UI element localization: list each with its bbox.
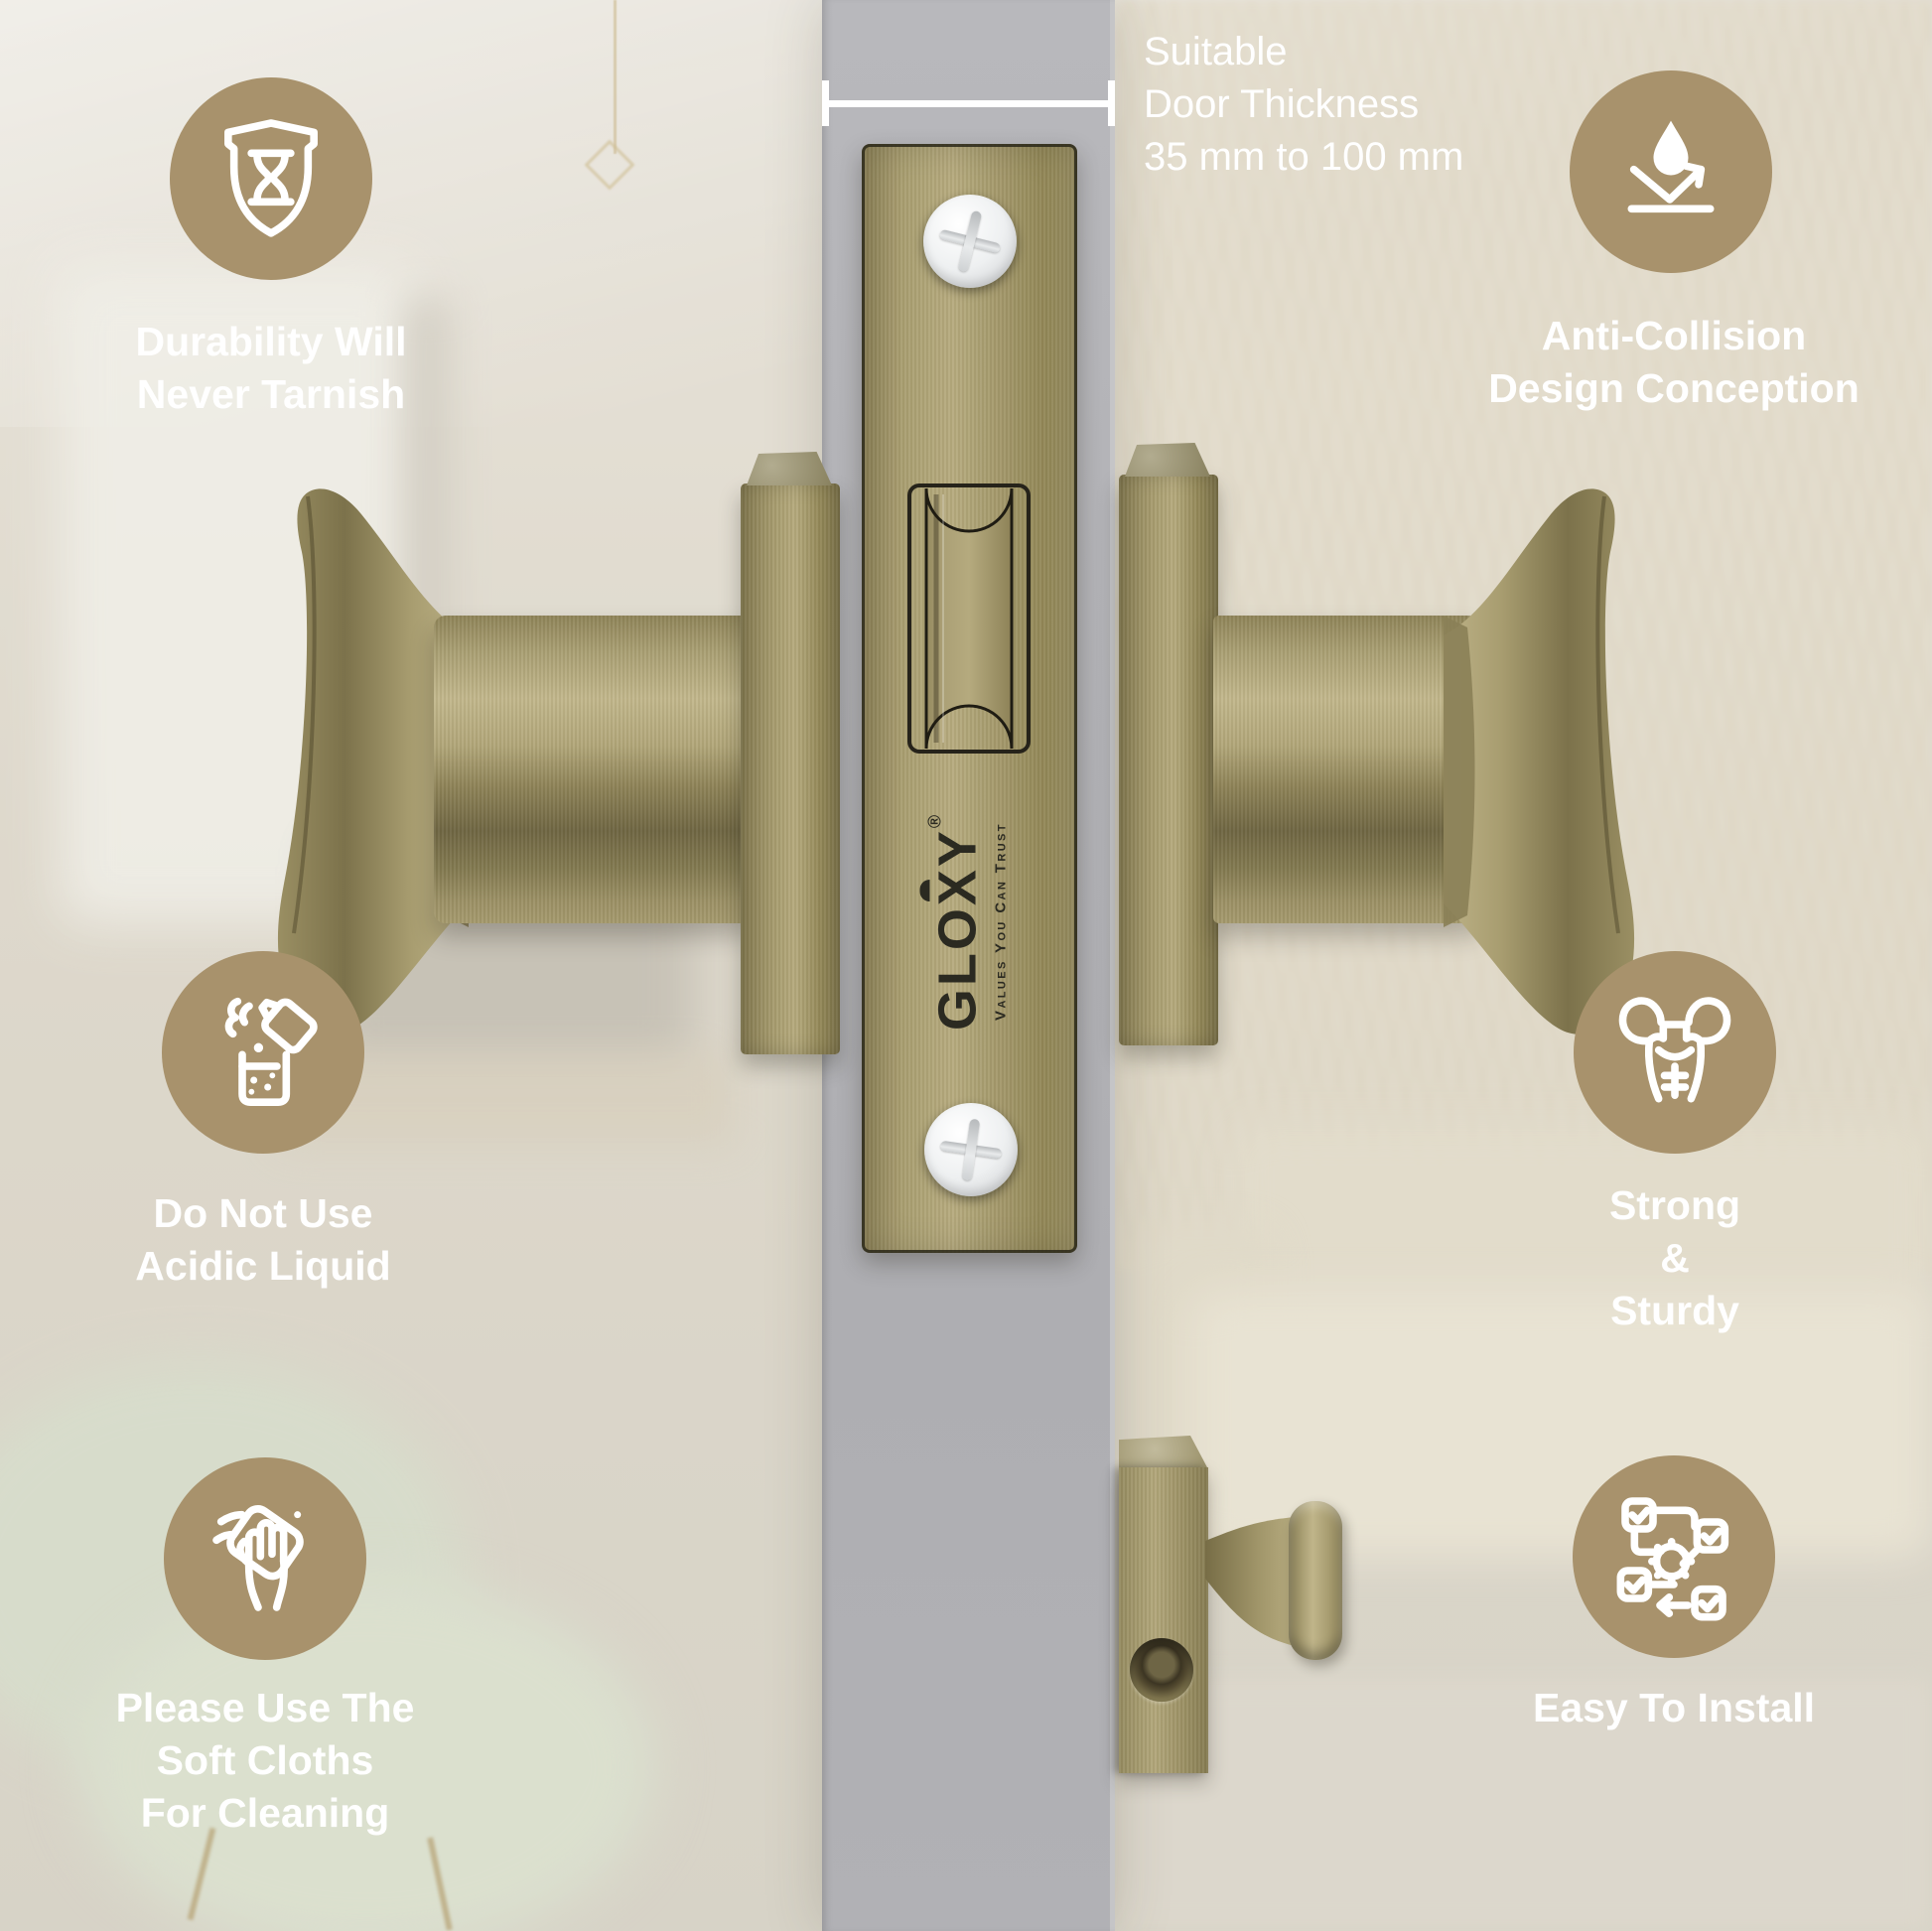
caption-line: For Cleaning xyxy=(37,1787,493,1840)
feature-caption-anti-collision: Anti-Collision Design Conception xyxy=(1423,310,1925,415)
feature-badge-strong xyxy=(1574,951,1776,1154)
hand-cloth-icon xyxy=(196,1489,335,1628)
muscle-man-icon xyxy=(1605,983,1744,1122)
feature-badge-easy-install xyxy=(1573,1455,1775,1658)
thumbturn-knob xyxy=(1289,1501,1342,1660)
brand-name: GLOXY® xyxy=(927,812,989,1031)
brand-name-text: GLOXY xyxy=(928,828,988,1031)
faceplate-screw-bottom xyxy=(924,1103,1018,1196)
feature-badge-soft-cloth xyxy=(164,1457,366,1660)
feature-caption-soft-cloth: Please Use The Soft Cloths For Cleaning xyxy=(37,1682,493,1840)
feature-caption-durability: Durability Will Never Tarnish xyxy=(43,316,499,421)
caption-line: Strong xyxy=(1476,1179,1873,1232)
feature-caption-no-acid: Do Not Use Acidic Liquid xyxy=(45,1187,482,1293)
caption-line: & xyxy=(1476,1232,1873,1285)
acid-beaker-icon xyxy=(194,983,333,1122)
caption-line: Sturdy xyxy=(1476,1285,1873,1337)
brand-tagline: Values You Can Trust xyxy=(993,797,1010,1045)
right-knob-neck xyxy=(1213,616,1481,923)
thumbturn-block xyxy=(1119,1467,1208,1773)
feature-badge-no-acid xyxy=(162,951,364,1154)
left-rose-plate xyxy=(741,483,840,1054)
caption-line: Soft Cloths xyxy=(37,1734,493,1787)
brand-logo: GLOXY® Values You Can Trust xyxy=(927,797,1010,1045)
faceplate-screw-top xyxy=(923,195,1017,288)
shield-hourglass-icon xyxy=(202,109,341,248)
caption-line: Design Conception xyxy=(1423,362,1925,415)
caption-line: Never Tarnish xyxy=(43,368,499,421)
registered-trademark: ® xyxy=(925,812,945,828)
latch-bolt xyxy=(906,483,1032,755)
door-thickness-label: Suitable Door Thickness 35 mm to 100 mm xyxy=(1144,26,1571,184)
thickness-line-3: 35 mm to 100 mm xyxy=(1144,131,1571,184)
feature-badge-anti-collision xyxy=(1570,70,1772,273)
feature-badge-durability xyxy=(170,77,372,280)
caption-line: Easy To Install xyxy=(1446,1682,1902,1734)
thickness-line-2: Door Thickness xyxy=(1144,78,1571,131)
feature-caption-easy-install: Easy To Install xyxy=(1446,1682,1902,1734)
caption-line: Please Use The xyxy=(37,1682,493,1734)
door-thickness-measure-line xyxy=(822,80,1115,126)
caption-line: Anti-Collision xyxy=(1423,310,1925,362)
feature-caption-strong: Strong & Sturdy xyxy=(1476,1179,1873,1337)
thickness-line-1: Suitable xyxy=(1144,26,1571,78)
drop-bounce-icon xyxy=(1601,102,1740,241)
right-rose-plate xyxy=(1119,475,1218,1045)
thumbturn-flare xyxy=(1203,1517,1297,1648)
install-flow-icon xyxy=(1604,1487,1743,1626)
caption-line: Do Not Use xyxy=(45,1187,482,1240)
left-knob-neck xyxy=(434,616,755,923)
caption-line: Durability Will xyxy=(43,316,499,368)
caption-line: Acidic Liquid xyxy=(45,1240,482,1293)
thumbturn-hole xyxy=(1130,1638,1193,1702)
product-infographic: Suitable Door Thickness 35 mm to 100 mm xyxy=(0,0,1932,1931)
measure-tick-right xyxy=(1108,80,1115,126)
measure-line xyxy=(822,100,1115,107)
